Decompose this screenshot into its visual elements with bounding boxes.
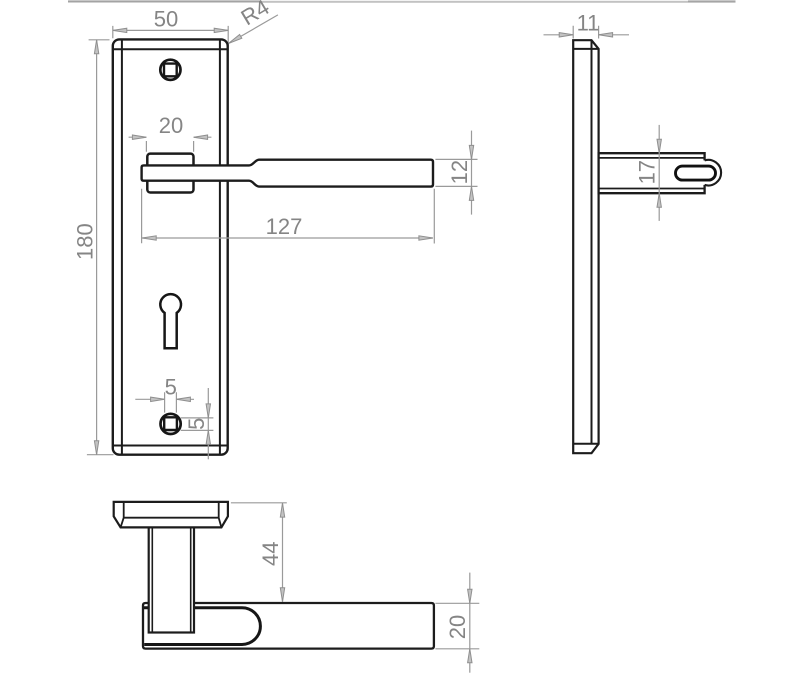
svg-text:20: 20 (159, 113, 183, 138)
svg-text:17: 17 (635, 160, 660, 184)
svg-text:11: 11 (577, 11, 600, 36)
svg-text:5: 5 (184, 418, 209, 430)
svg-text:R4: R4 (237, 0, 274, 30)
svg-text:44: 44 (258, 542, 283, 566)
svg-text:180: 180 (72, 223, 97, 260)
svg-text:12: 12 (447, 160, 472, 184)
svg-text:20: 20 (445, 615, 470, 639)
svg-text:50: 50 (154, 7, 178, 32)
svg-text:127: 127 (266, 214, 303, 239)
svg-text:5: 5 (165, 375, 177, 400)
